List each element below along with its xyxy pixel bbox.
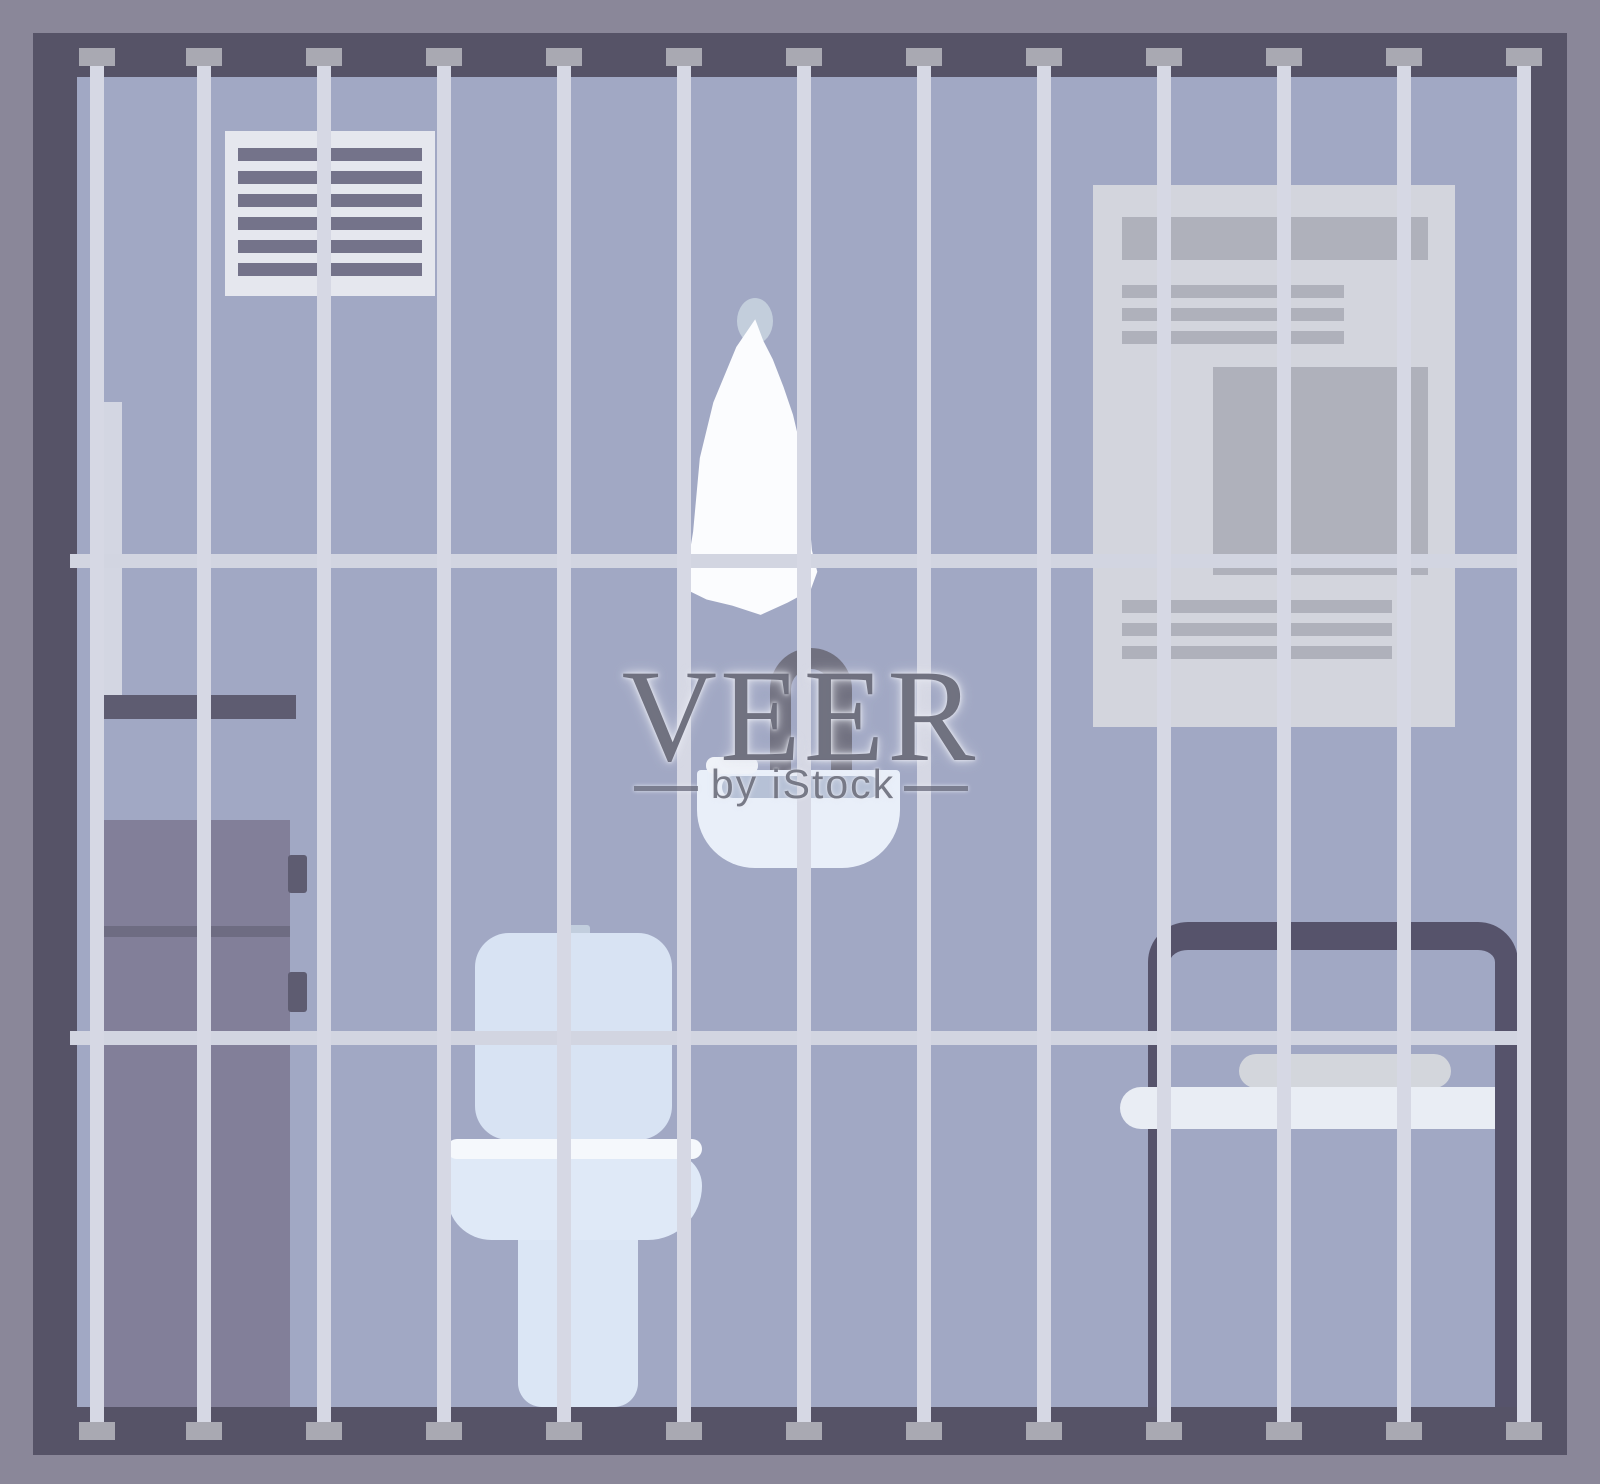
bar-cap (79, 48, 115, 66)
watermark-line (904, 786, 968, 791)
watermark-subtitle: by iStock (711, 764, 895, 805)
watermark-line (634, 786, 698, 791)
prison-cell-illustration: VEER by iStock (0, 0, 1600, 1484)
bar-cap-row (186, 1422, 1543, 1440)
prison-bar (90, 60, 104, 1426)
bar-cap-row (186, 48, 1543, 66)
bar-cap (79, 1422, 115, 1440)
